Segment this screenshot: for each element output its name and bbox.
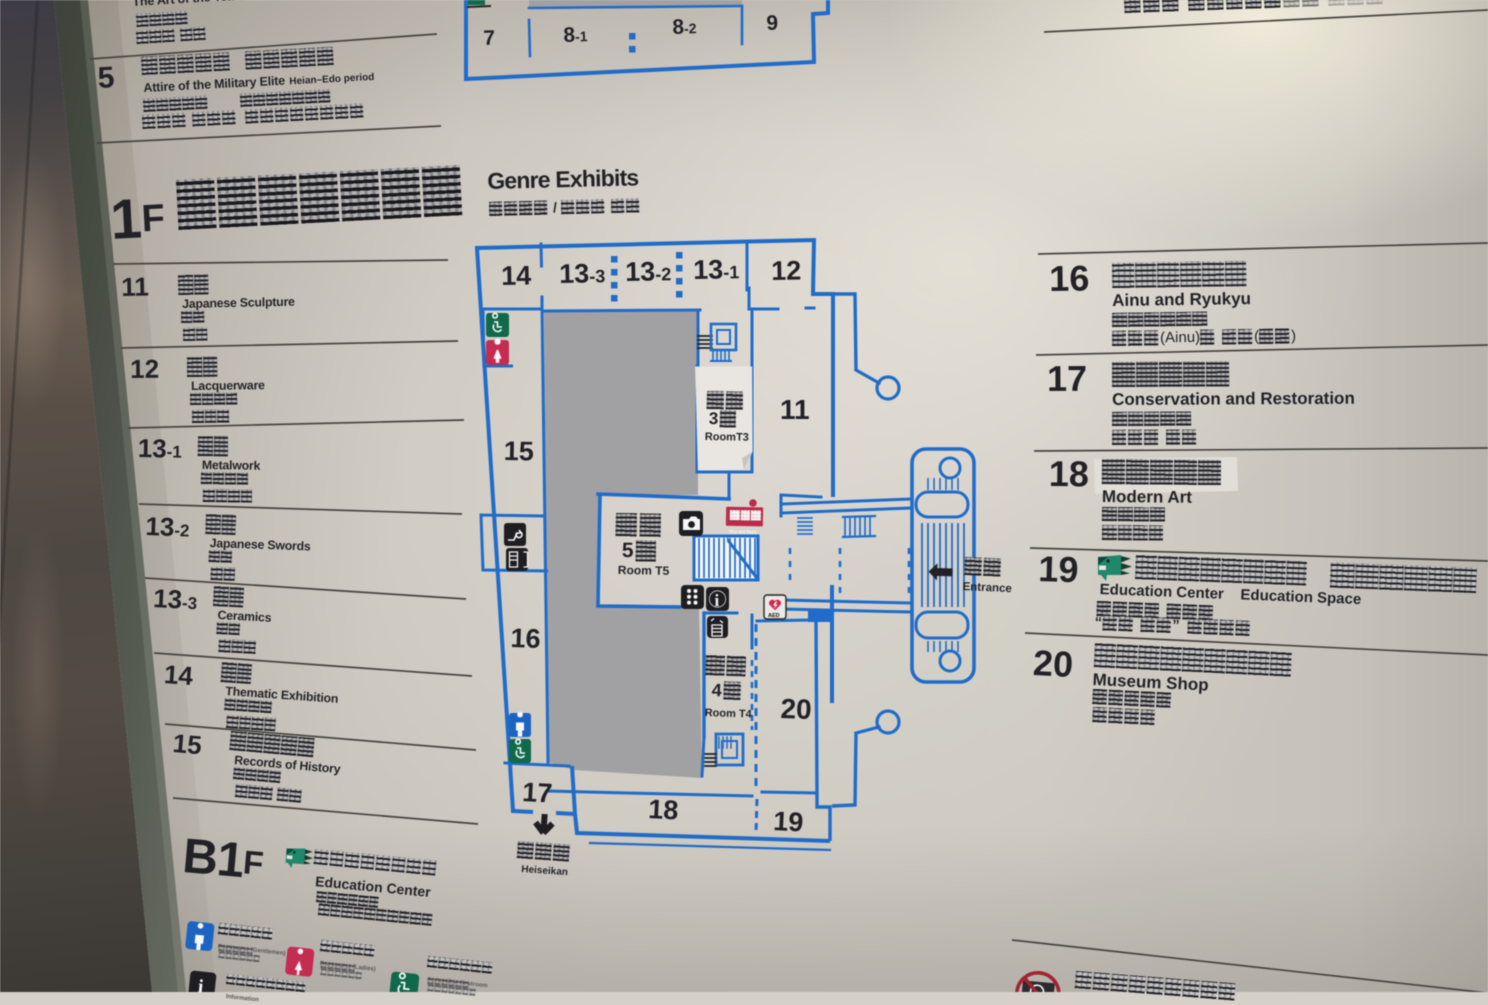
svg-text:i: i (715, 591, 720, 610)
svg-text:AED: AED (768, 613, 780, 619)
